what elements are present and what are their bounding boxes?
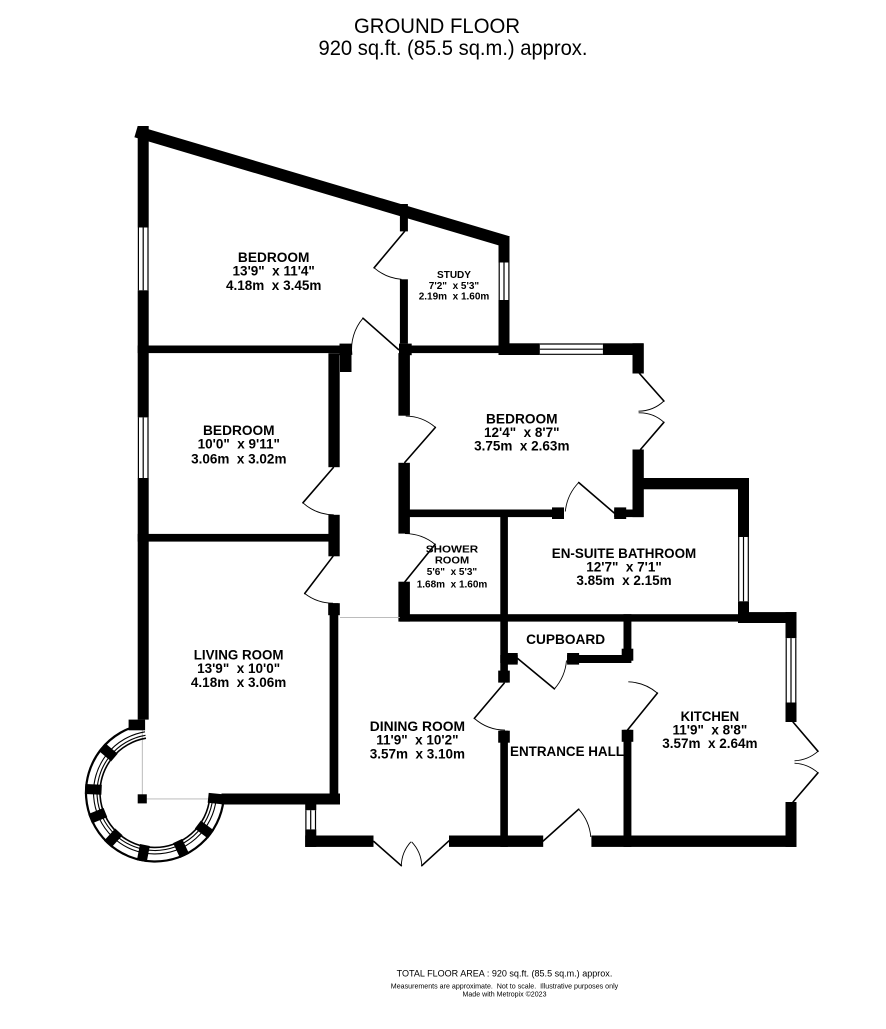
svg-text:13'9" x 11'4": 13'9" x 11'4" (233, 264, 315, 279)
svg-text:3.06m x 3.02m: 3.06m x 3.02m (191, 451, 286, 466)
svg-text:GROUND FLOOR: GROUND FLOOR (354, 15, 520, 38)
svg-text:TOTAL FLOOR AREA : 920 sq.ft.: TOTAL FLOOR AREA : 920 sq.ft. (85.5 sq.m… (397, 968, 613, 979)
svg-text:3.57m x 2.64m: 3.57m x 2.64m (662, 736, 757, 751)
svg-text:ENTRANCE HALL: ENTRANCE HALL (510, 744, 624, 759)
svg-text:ROOM: ROOM (435, 555, 469, 566)
svg-text:BEDROOM: BEDROOM (203, 423, 275, 438)
svg-text:5'6" x 5'3": 5'6" x 5'3" (427, 567, 478, 578)
svg-text:10'0" x 9'11": 10'0" x 9'11" (198, 437, 280, 452)
svg-text:3.75m x 2.63m: 3.75m x 2.63m (474, 439, 569, 454)
svg-text:920 sq.ft. (85.5 sq.m.) approx: 920 sq.ft. (85.5 sq.m.) approx. (319, 37, 588, 60)
svg-text:SHOWER: SHOWER (426, 545, 479, 556)
svg-text:CUPBOARD: CUPBOARD (526, 632, 605, 647)
svg-text:1.68m x 1.60m: 1.68m x 1.60m (417, 579, 488, 590)
svg-text:2.19m x 1.60m: 2.19m x 1.60m (419, 291, 490, 302)
svg-text:4.18m x 3.45m: 4.18m x 3.45m (226, 278, 321, 293)
svg-text:3.57m x 3.10m: 3.57m x 3.10m (370, 746, 465, 761)
svg-text:4.18m x 3.06m: 4.18m x 3.06m (191, 675, 286, 690)
svg-text:STUDY: STUDY (437, 270, 471, 281)
svg-text:3.85m x 2.15m: 3.85m x 2.15m (576, 573, 671, 588)
svg-text:Made with Metropix ©2023: Made with Metropix ©2023 (463, 990, 547, 999)
